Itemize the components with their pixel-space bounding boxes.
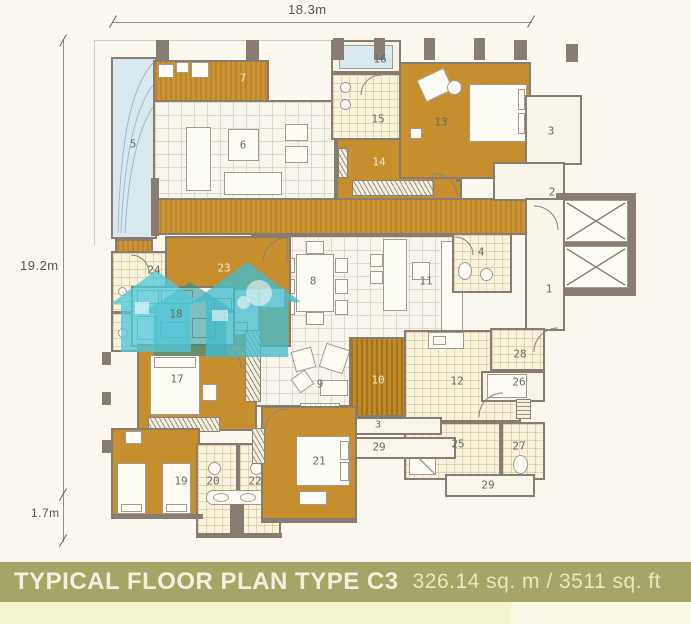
wall	[196, 533, 282, 538]
armchair	[285, 146, 308, 163]
left-dimension-line	[63, 40, 64, 542]
wall	[230, 504, 244, 534]
wall	[111, 514, 203, 519]
door-arc	[533, 205, 559, 231]
bar-stool	[370, 271, 383, 284]
sink	[340, 99, 351, 110]
top-dimension-label: 18.3m	[288, 2, 327, 17]
room-label-25: 25	[451, 438, 464, 451]
column	[246, 40, 259, 60]
corridor-balcony-strip	[153, 198, 531, 235]
wall	[261, 518, 357, 523]
shelf-hatch	[516, 399, 531, 419]
room-label-28: 28	[513, 348, 526, 361]
room-label-24: 24	[147, 264, 160, 277]
watermark-window	[212, 310, 228, 321]
toilet	[513, 455, 528, 474]
kitchen-island	[383, 239, 407, 311]
bar-stool	[370, 254, 383, 267]
room-label-12: 12	[450, 375, 463, 388]
room-label-7: 7	[240, 72, 247, 85]
room-label-26: 26	[512, 376, 525, 389]
armchair	[285, 124, 308, 141]
ac-ledge-stub	[102, 352, 111, 365]
room-label-2: 2	[549, 186, 556, 199]
room-label-6: 6	[240, 139, 247, 152]
room-label-3: 3	[548, 125, 555, 138]
room-label-5: 5	[130, 138, 137, 151]
door-arc	[262, 237, 288, 263]
bench	[299, 491, 327, 505]
room-label-17: 17	[170, 373, 183, 386]
elevator-1	[564, 200, 628, 242]
column	[156, 40, 169, 60]
bottom-strip	[0, 602, 691, 624]
room-label-15: 15	[371, 113, 384, 126]
door-arc	[454, 236, 474, 256]
door-arc	[264, 408, 288, 432]
plan-title: TYPICAL FLOOR PLAN TYPE C3	[14, 568, 399, 596]
sink	[480, 268, 493, 281]
room-label-8: 8	[310, 275, 317, 288]
dresser	[125, 431, 142, 444]
room-label-1: 1	[546, 283, 553, 296]
pillow	[166, 504, 187, 512]
left-small-dimension-label: 1.7m	[31, 506, 60, 520]
nightstand	[202, 384, 217, 401]
room-label-29-lower: 29	[481, 479, 494, 492]
ac-ledge-3	[354, 417, 442, 435]
room-label-20: 20	[206, 475, 219, 488]
planter-box	[191, 62, 209, 78]
pillow	[154, 357, 196, 368]
room-label-21: 21	[312, 455, 325, 468]
room-label-29-upper: 29	[372, 441, 385, 454]
sink	[208, 462, 221, 475]
ac-ledge-stub	[102, 440, 111, 453]
room-label-16: 16	[373, 53, 386, 66]
desk-chair	[447, 80, 462, 95]
column	[474, 38, 485, 60]
dining-chair	[335, 258, 348, 273]
basin	[240, 493, 256, 502]
room-label-14: 14	[372, 156, 385, 169]
pillow	[518, 89, 525, 110]
toilet	[340, 82, 351, 93]
room-label-10: 10	[371, 374, 384, 387]
room-label-9: 9	[317, 378, 324, 391]
wardrobe-hatch	[352, 180, 434, 196]
watermark-window	[135, 302, 149, 314]
title-banner: TYPICAL FLOOR PLAN TYPE C3 326.14 sq. m …	[0, 562, 691, 602]
kitchen-sink	[433, 336, 446, 345]
column	[566, 44, 578, 62]
sofa	[224, 172, 282, 195]
balcony-ledge-29	[354, 437, 456, 459]
room-label-13: 13	[434, 116, 447, 129]
room-label-19: 19	[174, 475, 187, 488]
pillow	[121, 504, 142, 512]
wardrobe-hatch	[252, 428, 265, 464]
dining-chair	[335, 300, 348, 315]
planter-box	[176, 62, 189, 73]
dining-chair	[306, 241, 324, 254]
room-label-4: 4	[478, 246, 485, 259]
room-label-22: 22	[248, 475, 261, 488]
door-arc	[478, 392, 504, 418]
pillow	[340, 462, 349, 481]
nightstand	[410, 128, 422, 139]
elevator-2	[564, 246, 628, 288]
dining-chair	[306, 312, 324, 325]
planter-box	[158, 64, 174, 78]
column	[514, 40, 527, 60]
room-label-3-ledge: 3	[375, 420, 381, 431]
column	[424, 38, 435, 60]
wardrobe-hatch	[338, 148, 348, 178]
wall	[151, 178, 159, 236]
watermark-dot	[237, 296, 250, 309]
pillow	[518, 113, 525, 134]
top-dimension-line	[113, 22, 532, 23]
door-arc	[533, 327, 559, 353]
side-table	[320, 380, 348, 396]
room-label-27: 27	[512, 440, 525, 453]
room-label-23: 23	[217, 262, 230, 275]
left-dimension-label: 19.2m	[20, 258, 59, 273]
column	[333, 38, 344, 60]
room-label-11: 11	[419, 275, 432, 288]
door-arc	[360, 74, 382, 96]
pillow	[340, 441, 349, 460]
toilet	[458, 262, 472, 280]
ac-ledge-stub	[102, 392, 111, 405]
sofa-long	[186, 127, 211, 191]
door-arc	[432, 172, 458, 198]
plan-area: 326.14 sq. m / 3511 sq. ft	[413, 570, 661, 594]
room-label-18: 18	[169, 308, 182, 321]
basin	[213, 493, 229, 502]
dining-chair	[335, 279, 348, 294]
floor-plan-page: 18.3m 19.2m 1.7m	[0, 0, 691, 624]
